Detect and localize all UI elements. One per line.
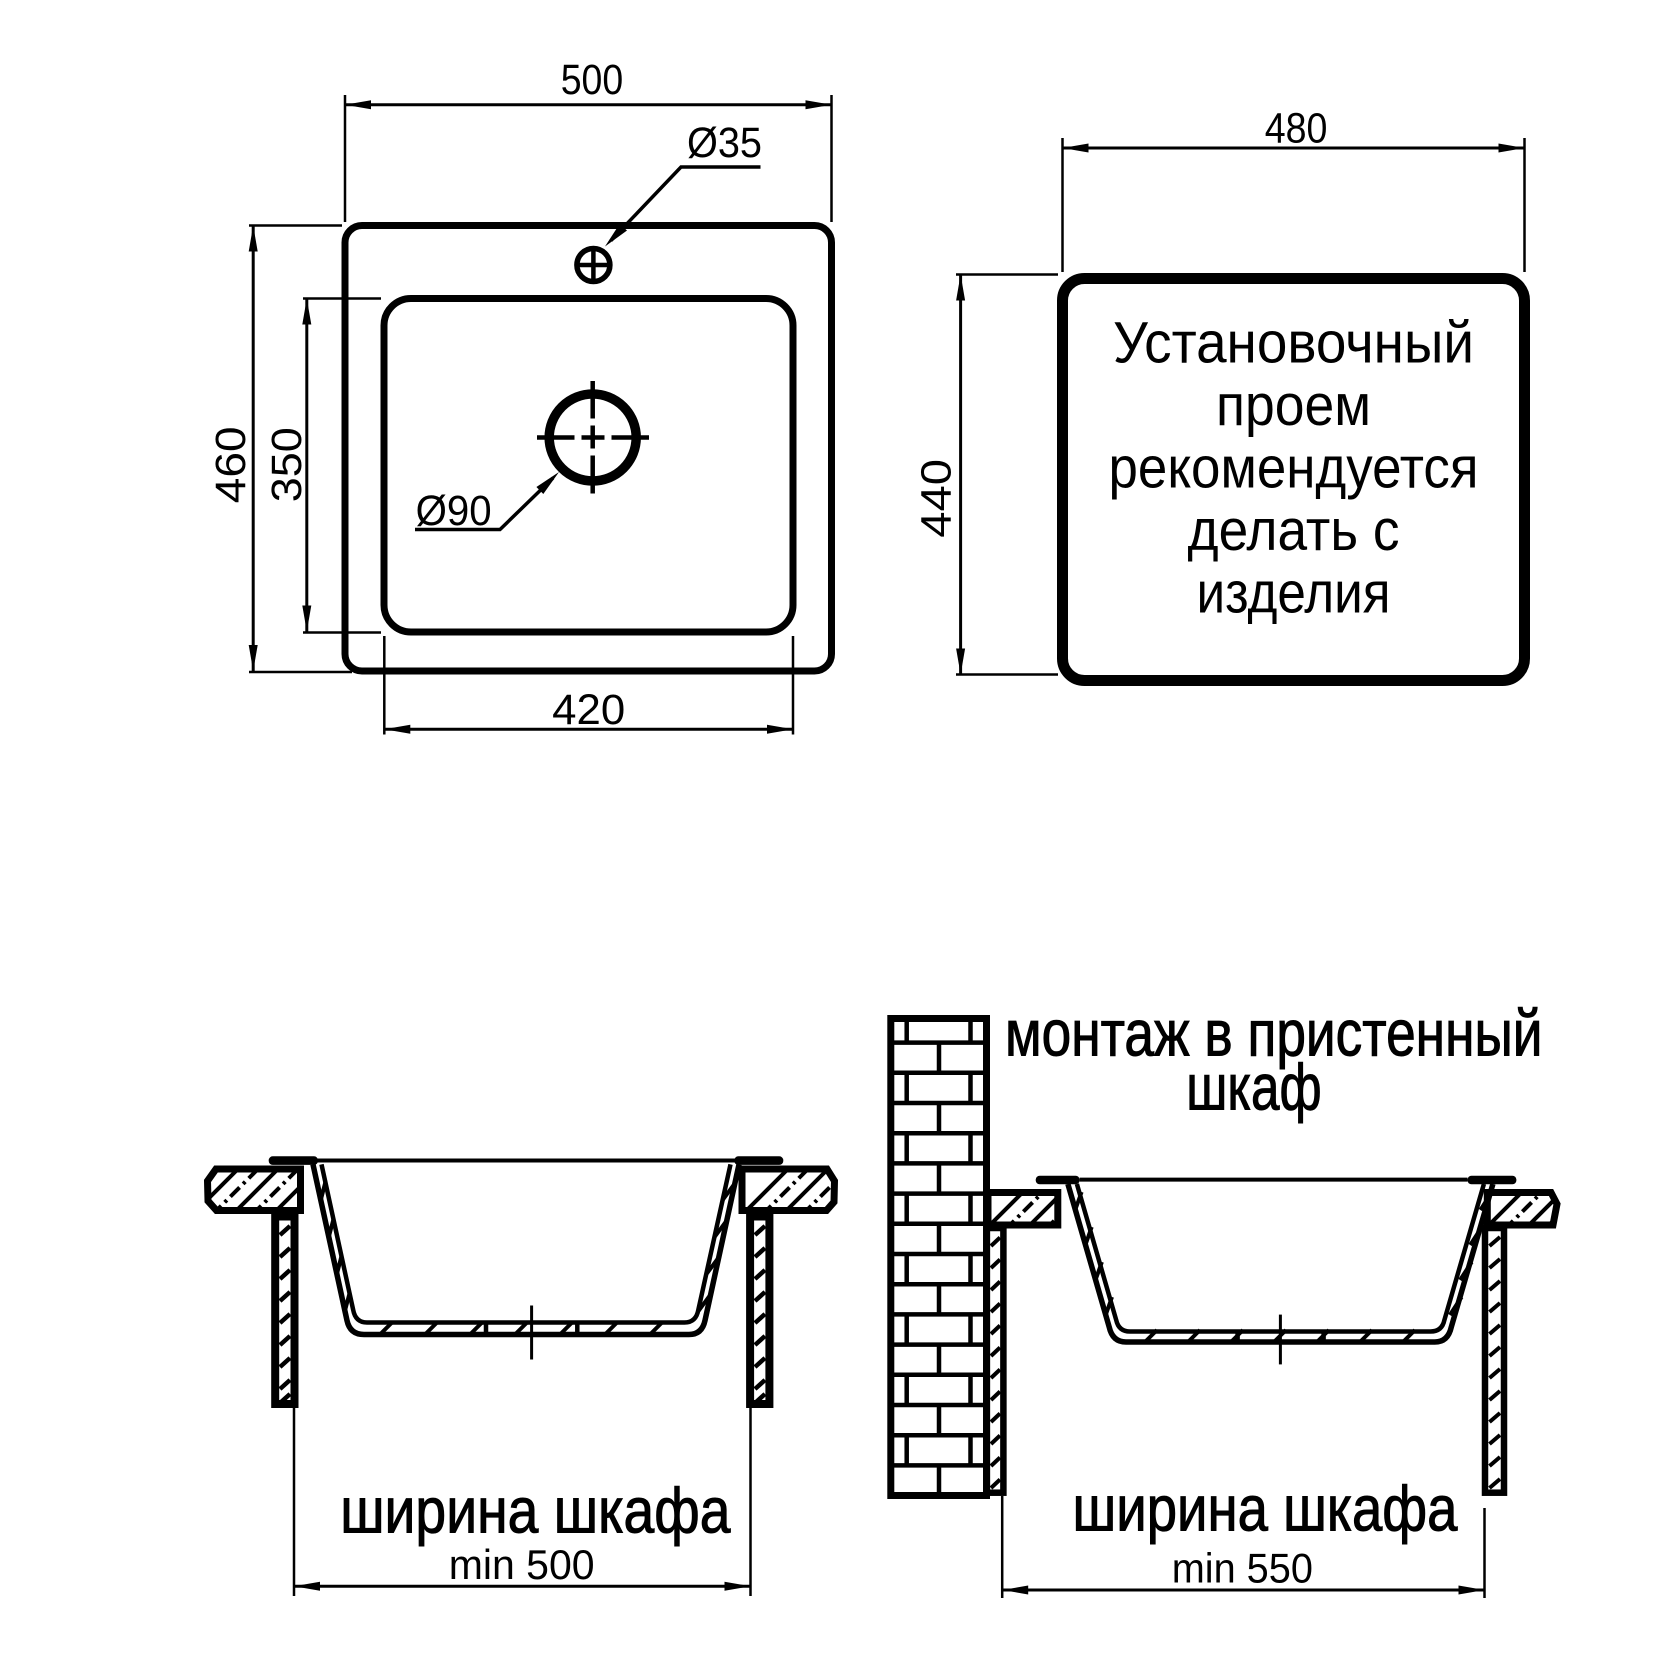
svg-text:рекомендуется: рекомендуется bbox=[1109, 436, 1479, 501]
svg-text:480: 480 bbox=[1265, 104, 1328, 152]
svg-text:min 550: min 550 bbox=[1172, 1545, 1313, 1592]
svg-text:min 500: min 500 bbox=[449, 1541, 595, 1588]
svg-text:ширина шкафа: ширина шкафа bbox=[1073, 1472, 1458, 1544]
svg-text:500: 500 bbox=[561, 56, 624, 104]
svg-text:420: 420 bbox=[552, 686, 625, 734]
svg-text:ширина шкафа: ширина шкафа bbox=[340, 1475, 731, 1547]
svg-text:460: 460 bbox=[207, 426, 255, 503]
svg-text:изделия: изделия bbox=[1197, 561, 1391, 626]
svg-text:Установочный: Установочный bbox=[1113, 311, 1474, 376]
svg-text:350: 350 bbox=[263, 427, 311, 502]
svg-text:шкаф: шкаф bbox=[1186, 1051, 1321, 1124]
svg-text:440: 440 bbox=[913, 459, 961, 538]
svg-text:Ø35: Ø35 bbox=[687, 119, 762, 167]
svg-text:проем: проем bbox=[1216, 373, 1371, 438]
svg-text:Ø90: Ø90 bbox=[416, 487, 492, 535]
svg-text:делать с: делать с bbox=[1188, 498, 1400, 563]
